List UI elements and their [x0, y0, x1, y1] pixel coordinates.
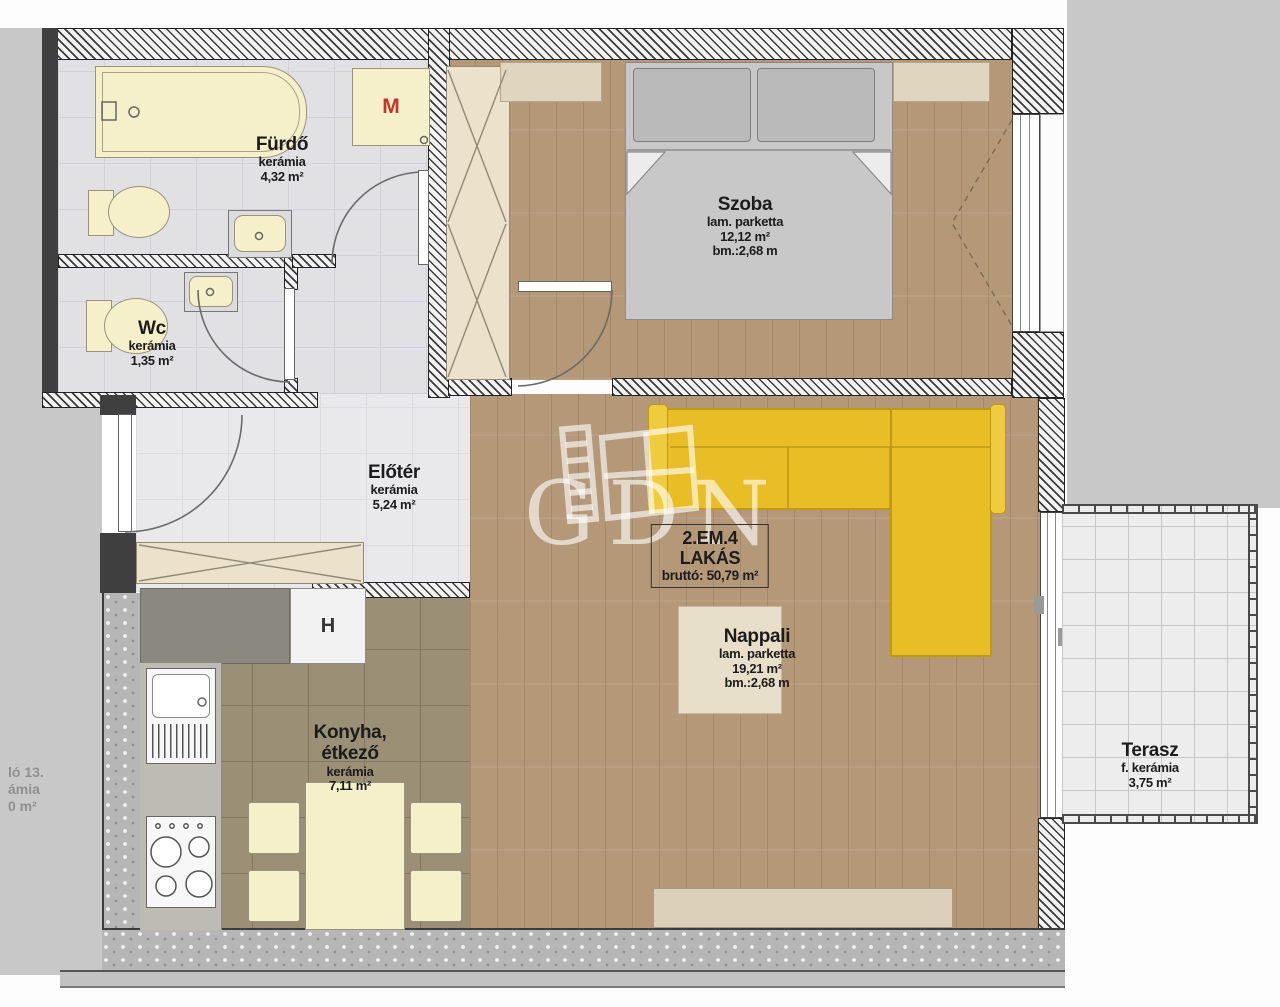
hall-wardrobe: [136, 542, 364, 584]
bathroom-door-leaf: [418, 170, 429, 265]
wall: [1038, 398, 1065, 512]
room-label-furdo: Fürdő kerámia 4,32 m²: [256, 134, 308, 184]
wall: [448, 378, 512, 396]
wall: [100, 533, 136, 593]
chair: [410, 802, 462, 854]
room-label-szoba: Szoba lam. parketta 12,12 m² bm.:2,68 m: [707, 194, 783, 259]
wall: [612, 378, 1012, 396]
chair: [410, 870, 462, 922]
wall-exterior: [102, 593, 140, 935]
tv-stand: [653, 888, 953, 928]
floor-plan: ló 13. ámia 0 m² M: [0, 0, 1280, 1007]
pillow: [633, 68, 751, 142]
bedroom-window: [1012, 114, 1040, 332]
wall-exterior-band: [60, 970, 1065, 988]
wall: [1038, 818, 1065, 935]
room-label-nappali: Nappali lam. parketta 19,21 m² bm.:2,68 …: [719, 626, 795, 691]
kitchen-sink-drainer: [152, 724, 210, 758]
unit-label-box: 2.EM.4 LAKÁS bruttó: 50,79 m²: [651, 524, 769, 588]
fridge-marker: H: [321, 615, 335, 638]
wall-exterior: [102, 928, 1065, 972]
kitchen-counter-top: [140, 588, 290, 664]
wc-sink-basin: [189, 276, 233, 307]
chair: [248, 802, 300, 854]
room-label-eloter: Előtér kerámia 5,24 m²: [368, 462, 420, 512]
stove: [146, 816, 216, 908]
bedroom-shelf-left: [500, 62, 602, 102]
wall: [1012, 332, 1064, 398]
wc-door-leaf: [284, 288, 295, 380]
neighbor-label-fragment: ló 13. ámia 0 m²: [8, 764, 44, 814]
room-label-terasz: Terasz f. kerámia 3,75 m²: [1121, 740, 1179, 790]
bedroom-shelf-right: [893, 62, 990, 102]
bathroom-sink-basin: [234, 215, 286, 252]
terrace-railing-top: [1062, 504, 1258, 514]
sofa-armrest-right: [990, 404, 1006, 514]
entrance-door-leaf: [118, 414, 132, 532]
outside-area-left-lower: [0, 395, 102, 975]
wall: [42, 28, 58, 398]
wall: [100, 395, 136, 415]
toilet-bowl: [108, 186, 170, 238]
room-label-wc: Wc kerámia 1,35 m²: [128, 318, 175, 368]
bedroom-door-leaf: [518, 281, 612, 292]
terrace-railing-right: [1248, 504, 1258, 824]
door-handle: [1034, 596, 1044, 614]
washing-machine: M: [352, 68, 430, 146]
washing-machine-marker: M: [382, 95, 400, 119]
terrace-glass-door: [1040, 512, 1064, 818]
wall: [1012, 28, 1064, 114]
fridge: H: [290, 588, 366, 664]
dining-table: [305, 782, 405, 930]
wall: [42, 392, 318, 408]
room-label-konyha: Konyha, étkező kerámia 7,11 m²: [314, 722, 387, 794]
wall: [292, 254, 336, 268]
wardrobe-tall: [446, 66, 510, 380]
bedroom-window-sill: [1040, 114, 1064, 332]
pillow: [757, 68, 875, 142]
chair: [248, 870, 300, 922]
sofa-chaise: [890, 408, 992, 657]
terrace-railing-bottom: [1062, 814, 1258, 824]
outside-area-right: [1067, 0, 1280, 508]
wall: [42, 28, 1012, 60]
kitchen-sink-bowl: [152, 674, 210, 718]
